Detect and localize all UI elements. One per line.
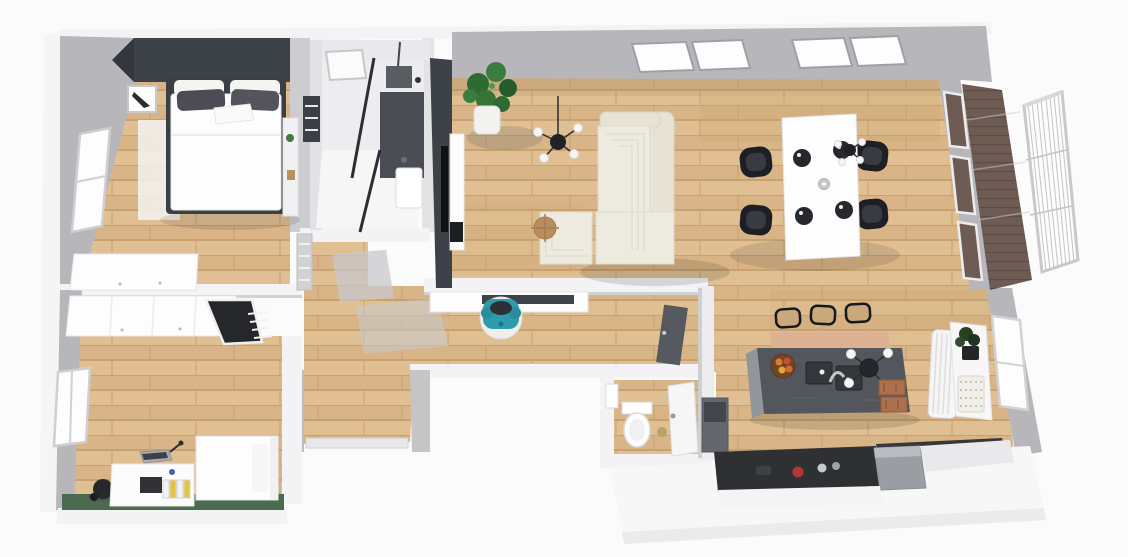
single-bed-headboard	[270, 436, 278, 500]
wc-toilet-seat	[629, 419, 645, 441]
kitchen-plant	[955, 337, 965, 347]
fruit	[784, 358, 791, 365]
desk-lamp-head	[179, 441, 184, 446]
kitchen-plant-pot	[962, 346, 979, 360]
pendant-shade	[844, 144, 856, 156]
wood-crate	[879, 380, 905, 395]
chandelier-shade	[860, 359, 878, 377]
wall-window	[850, 36, 906, 66]
pendant-bulb	[857, 157, 864, 164]
place-setting	[795, 207, 813, 225]
stool-seat	[775, 308, 800, 328]
sink-soap	[820, 370, 825, 375]
wall-window	[792, 38, 852, 68]
wc-door	[668, 382, 698, 456]
wc-basin	[606, 384, 618, 408]
bathroom	[303, 40, 430, 232]
shower-drain	[401, 157, 407, 163]
dining-chair	[739, 204, 773, 237]
hall-south-wall	[410, 364, 708, 378]
pot	[832, 462, 840, 470]
pendant-bulb	[839, 159, 846, 166]
bathroom-south-wall	[300, 228, 430, 242]
stool-seat	[846, 303, 871, 322]
shower-mixer	[415, 77, 421, 83]
desk-chair-wheel	[90, 493, 98, 501]
floorplan-canvas[interactable]	[0, 0, 1128, 557]
desk-front-panel	[140, 477, 162, 493]
bar-stool	[846, 303, 871, 322]
chandelier-bulb	[845, 379, 854, 388]
door-mat	[332, 250, 394, 302]
fruit-bowl	[771, 354, 795, 378]
wc-cistern	[622, 402, 652, 414]
office-east-wall	[282, 336, 302, 504]
place-setting-glint	[839, 205, 843, 209]
desk-logo-sticker	[169, 469, 175, 475]
bathroom-toilet	[396, 168, 422, 208]
front-door	[306, 438, 408, 448]
shower-tray	[380, 92, 424, 178]
wc-brush	[657, 427, 667, 437]
tv	[441, 146, 448, 232]
plant-leaves	[499, 79, 517, 97]
place-setting	[835, 201, 853, 219]
plant-leaves	[463, 89, 477, 103]
dining-chair	[739, 145, 774, 178]
teal-armchair-detail	[499, 322, 504, 327]
candle-flame	[822, 182, 826, 186]
plant-leaves	[486, 62, 506, 82]
chair-seat	[861, 204, 882, 224]
chair-seat	[745, 152, 767, 172]
bedroom-wardrobe	[70, 254, 198, 290]
sofa-chaise	[596, 212, 674, 264]
binder	[170, 480, 176, 498]
binder	[163, 480, 169, 498]
tall-appliance-door	[704, 402, 726, 422]
chair-seat	[861, 146, 883, 166]
shelf-plant	[286, 134, 294, 142]
stool-seat	[811, 305, 836, 324]
wc-kitchen-divider-edge	[698, 288, 702, 458]
kitchen-plant	[968, 334, 980, 346]
wall-window	[632, 42, 694, 72]
skylight	[326, 50, 366, 80]
plant-leaf-highlight	[489, 83, 495, 89]
pot	[818, 464, 827, 473]
binder	[184, 480, 190, 498]
tv-console-deco	[450, 222, 463, 242]
shelf-books	[287, 170, 295, 180]
binder	[177, 480, 183, 498]
ceiling-shadow-band	[452, 78, 948, 96]
wardrobe-handle	[119, 283, 122, 286]
teal-armchair-cushion	[490, 301, 512, 315]
chandelier-bulb	[847, 350, 856, 359]
plant-pot	[474, 106, 500, 134]
wardrobe-handle	[179, 328, 182, 331]
sink-bowl	[806, 362, 832, 384]
shower-head	[386, 66, 412, 88]
pendant-bulb	[574, 124, 583, 133]
place-setting	[793, 149, 811, 167]
chandelier-bulb	[884, 349, 893, 358]
wood-crate	[881, 397, 907, 412]
office-south-wall	[56, 508, 288, 524]
wardrobe-handle	[159, 282, 162, 285]
pendant-bulb	[570, 150, 579, 159]
place-setting-glint	[799, 211, 803, 215]
fruit	[779, 367, 786, 374]
breakfast-bar	[770, 332, 891, 349]
entry-east-wall	[410, 370, 430, 452]
toaster	[756, 466, 771, 475]
dining-chair	[855, 198, 889, 231]
chair-seat	[745, 210, 766, 230]
bedroom-shelf	[283, 118, 298, 216]
hall-radiator	[297, 234, 312, 290]
fruit	[776, 359, 783, 366]
pendant-bulb	[534, 128, 543, 137]
wall-window	[692, 40, 750, 70]
fridge-top	[874, 446, 921, 458]
pendant-bulb	[540, 154, 549, 163]
bar-stool	[775, 308, 800, 328]
place-setting-glint	[797, 153, 801, 157]
wardrobe-handle	[121, 329, 124, 332]
single-bed-pillow	[252, 444, 268, 492]
pendant-shade	[550, 134, 566, 150]
bar-stool	[811, 305, 836, 324]
bed-throw	[214, 104, 254, 124]
bedroom-accent-wall	[134, 38, 302, 82]
wc-door-handle	[671, 414, 676, 419]
pendant-bulb	[859, 139, 866, 146]
fruit	[786, 366, 793, 373]
floorplan-3d-view[interactable]	[0, 0, 1128, 557]
pendant-bulb	[835, 141, 842, 148]
red-kettle	[793, 467, 804, 478]
